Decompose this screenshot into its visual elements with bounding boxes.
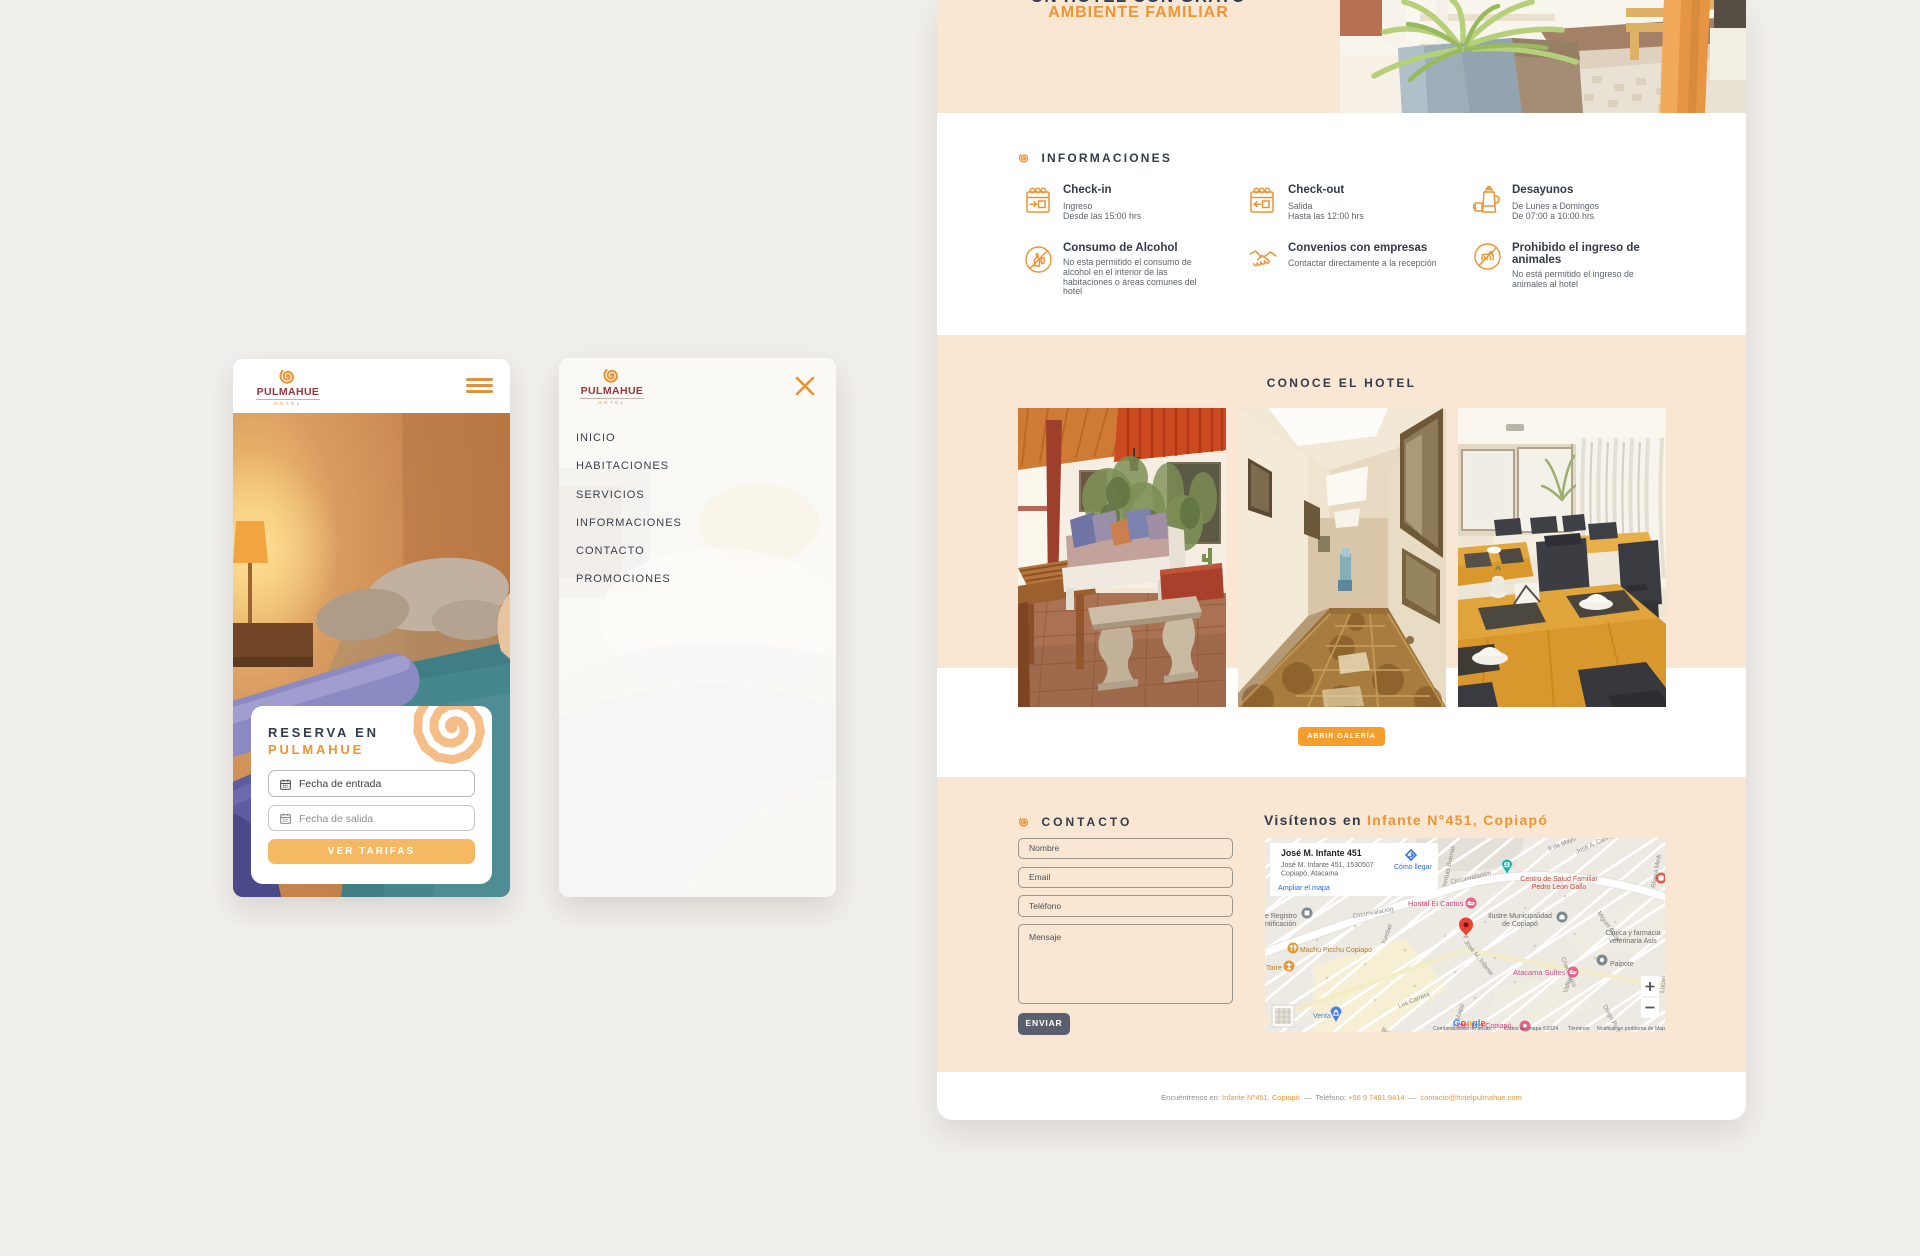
svg-text:Ampliar el mapa: Ampliar el mapa xyxy=(1278,883,1330,892)
svg-text:Machu Picchu Copiapo: Machu Picchu Copiapo xyxy=(1300,947,1372,954)
svg-text:Torre: Torre xyxy=(1266,965,1282,972)
svg-text:José M. Infante 451: José M. Infante 451 xyxy=(1281,848,1362,858)
svg-text:Paipote: Paipote xyxy=(1610,961,1634,968)
svg-text:Combinaciones de teclas: Combinaciones de teclas xyxy=(1433,1026,1491,1032)
svg-text:José M. Infante 451, 1530507: José M. Infante 451, 1530507 xyxy=(1281,862,1374,869)
svg-text:Datos del mapa ©2024: Datos del mapa ©2024 xyxy=(1505,1025,1558,1032)
svg-text:Pedro León Gallo: Pedro León Gallo xyxy=(1532,884,1587,891)
svg-text:Atacama Suites: Atacama Suites xyxy=(1513,968,1566,977)
svg-text:Lucan: Lucan xyxy=(1659,975,1665,993)
svg-text:Venta: Venta xyxy=(1313,1013,1331,1020)
svg-text:Cómo llegar: Cómo llegar xyxy=(1394,864,1432,871)
svg-text:e Registro: e Registro xyxy=(1265,913,1297,920)
svg-text:veterinaria Asis: veterinaria Asis xyxy=(1609,938,1657,945)
svg-text:Hostal El Cactus: Hostal El Cactus xyxy=(1408,899,1464,908)
svg-text:Ilustre Municipalidad: Ilustre Municipalidad xyxy=(1488,913,1552,920)
svg-text:Centro de Salud Familiar: Centro de Salud Familiar xyxy=(1520,876,1598,883)
svg-text:de Copiapó: de Copiapó xyxy=(1502,921,1538,928)
svg-text:Notificar un problema de Maps: Notificar un problema de Maps xyxy=(1597,1026,1665,1032)
svg-text:Copiapó, Atacama: Copiapó, Atacama xyxy=(1281,871,1338,878)
svg-text:Clinica y farmacia: Clinica y farmacia xyxy=(1605,930,1660,937)
svg-text:ntificación: ntificación xyxy=(1265,921,1296,928)
svg-text:Términos: Términos xyxy=(1568,1026,1590,1032)
